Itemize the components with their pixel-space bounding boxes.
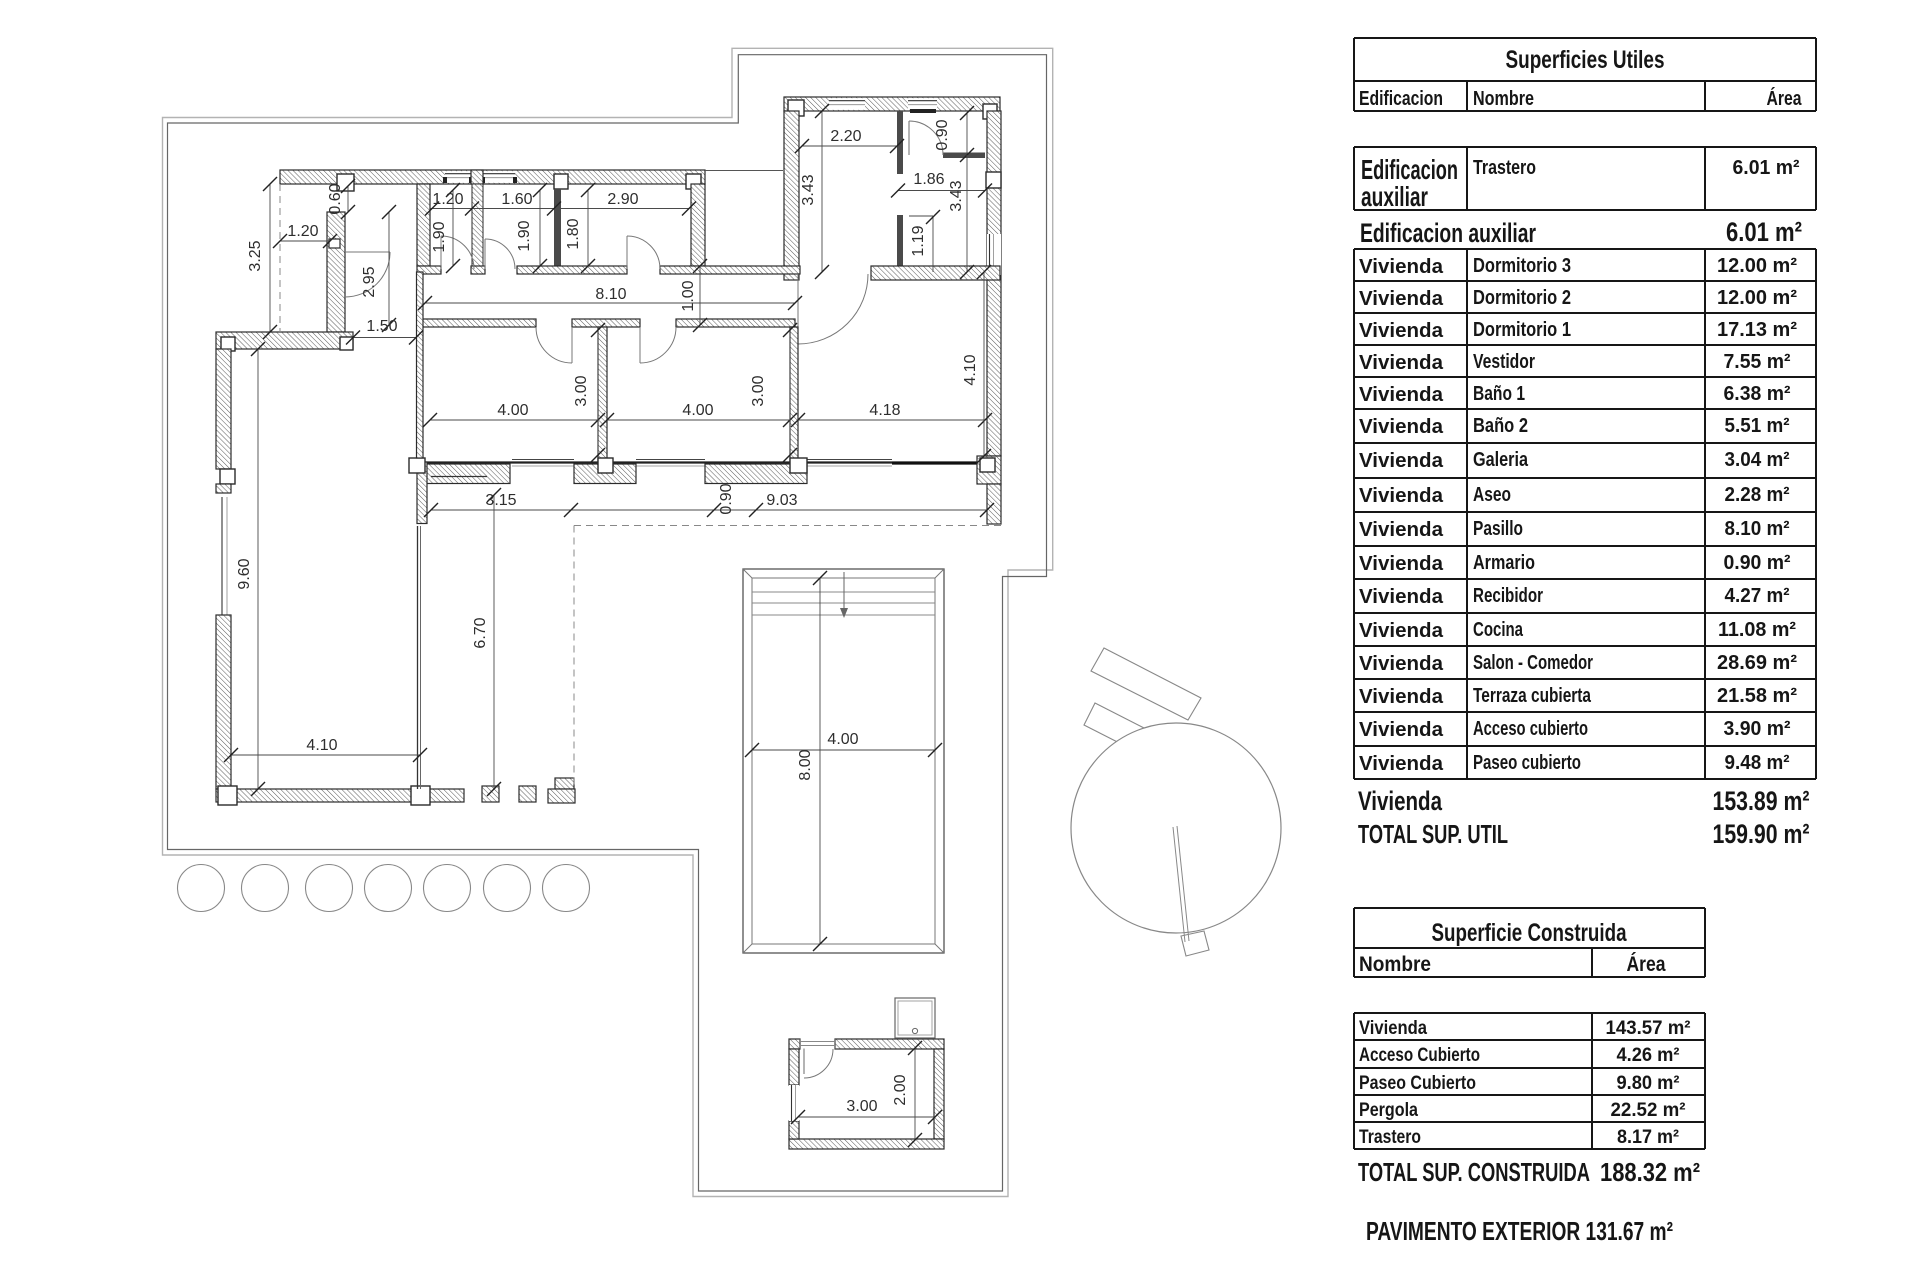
svg-text:Aseo: Aseo <box>1473 484 1511 506</box>
svg-text:9.60: 9.60 <box>236 558 253 589</box>
svg-text:Vivienda: Vivienda <box>1359 485 1444 507</box>
svg-text:Acceso Cubierto: Acceso Cubierto <box>1359 1045 1480 1066</box>
svg-text:5.51 m²: 5.51 m² <box>1725 415 1790 437</box>
svg-text:Vivienda: Vivienda <box>1359 256 1444 278</box>
svg-text:Cocina: Cocina <box>1473 619 1524 641</box>
svg-text:Vestidor: Vestidor <box>1473 351 1535 373</box>
svg-text:Vivienda: Vivienda <box>1359 753 1444 775</box>
svg-text:Vivienda: Vivienda <box>1359 620 1444 642</box>
svg-text:188.32 m²: 188.32 m² <box>1600 1157 1700 1187</box>
svg-text:0.90 m²: 0.90 m² <box>1724 552 1791 574</box>
svg-text:Dormitorio 1: Dormitorio 1 <box>1473 319 1571 341</box>
svg-text:Superficie Construida: Superficie Construida <box>1432 919 1628 947</box>
svg-text:Trastero: Trastero <box>1473 157 1536 179</box>
svg-text:Área: Área <box>1767 87 1803 110</box>
svg-text:17.13 m²: 17.13 m² <box>1717 319 1797 341</box>
svg-text:1.80: 1.80 <box>565 218 582 249</box>
svg-text:Vivienda: Vivienda <box>1359 519 1444 541</box>
svg-text:9.48 m²: 9.48 m² <box>1725 752 1790 774</box>
svg-text:2.00: 2.00 <box>892 1074 909 1105</box>
svg-text:4.00: 4.00 <box>682 402 713 419</box>
svg-text:Trastero: Trastero <box>1359 1127 1421 1148</box>
svg-text:153.89 m²: 153.89 m² <box>1713 786 1810 816</box>
svg-text:6.38 m²: 6.38 m² <box>1724 383 1791 405</box>
svg-text:8.17 m²: 8.17 m² <box>1617 1127 1679 1148</box>
svg-text:Pasillo: Pasillo <box>1473 518 1523 540</box>
svg-text:159.90 m²: 159.90 m² <box>1713 819 1810 849</box>
svg-text:8.00: 8.00 <box>797 749 814 780</box>
svg-text:7.55 m²: 7.55 m² <box>1724 351 1791 373</box>
svg-text:Paseo cubierto: Paseo cubierto <box>1473 752 1581 774</box>
svg-text:Vivienda: Vivienda <box>1359 416 1444 438</box>
svg-text:9.03: 9.03 <box>766 492 797 509</box>
svg-text:6.01 m²: 6.01 m² <box>1733 157 1800 179</box>
svg-text:8.10: 8.10 <box>595 286 626 303</box>
svg-text:Vivienda: Vivienda <box>1359 1018 1427 1039</box>
svg-text:12.00 m²: 12.00 m² <box>1717 255 1797 277</box>
svg-text:Baño 1: Baño 1 <box>1473 383 1525 405</box>
svg-text:Paseo Cubierto: Paseo Cubierto <box>1359 1073 1476 1094</box>
svg-text:Edificacion: Edificacion <box>1359 88 1443 110</box>
svg-text:Armario: Armario <box>1473 552 1535 574</box>
svg-text:3.90 m²: 3.90 m² <box>1724 718 1791 740</box>
svg-text:4.10: 4.10 <box>306 737 337 754</box>
svg-text:2.95: 2.95 <box>361 266 378 297</box>
svg-text:Acceso cubierto: Acceso cubierto <box>1473 718 1588 740</box>
svg-text:Baño 2: Baño 2 <box>1473 415 1528 437</box>
svg-text:1.90: 1.90 <box>516 220 533 251</box>
svg-text:1.86: 1.86 <box>913 171 944 188</box>
svg-text:4.00: 4.00 <box>827 731 858 748</box>
svg-text:1.50: 1.50 <box>366 318 397 335</box>
svg-text:3.15: 3.15 <box>485 492 516 509</box>
svg-text:8.10 m²: 8.10 m² <box>1725 518 1790 540</box>
svg-text:Galeria: Galeria <box>1473 449 1529 471</box>
svg-text:PAVIMENTO EXTERIOR 131.67 m²: PAVIMENTO EXTERIOR 131.67 m² <box>1366 1216 1673 1246</box>
svg-text:4.10: 4.10 <box>962 354 979 385</box>
svg-text:28.69 m²: 28.69 m² <box>1717 652 1797 674</box>
svg-text:6.70: 6.70 <box>472 617 489 648</box>
svg-text:22.52 m²: 22.52 m² <box>1611 1100 1686 1121</box>
svg-text:3.00: 3.00 <box>750 375 767 406</box>
svg-text:3.04 m²: 3.04 m² <box>1725 449 1790 471</box>
svg-text:Vivienda: Vivienda <box>1359 288 1444 310</box>
svg-text:1.20: 1.20 <box>432 191 463 208</box>
svg-text:1.90: 1.90 <box>431 221 448 252</box>
svg-text:Vivienda: Vivienda <box>1359 352 1444 374</box>
svg-text:1.20: 1.20 <box>287 223 318 240</box>
svg-text:Vivienda: Vivienda <box>1359 686 1444 708</box>
svg-text:4.26 m²: 4.26 m² <box>1617 1045 1680 1066</box>
svg-text:Área: Área <box>1627 953 1666 976</box>
svg-text:Nombre: Nombre <box>1359 953 1431 976</box>
svg-text:Vivienda: Vivienda <box>1359 553 1444 575</box>
svg-text:4.18: 4.18 <box>869 402 900 419</box>
svg-text:4.27 m²: 4.27 m² <box>1725 585 1790 607</box>
svg-text:Dormitorio 3: Dormitorio 3 <box>1473 255 1571 277</box>
svg-text:Vivienda: Vivienda <box>1359 450 1444 472</box>
svg-text:12.00 m²: 12.00 m² <box>1717 287 1797 309</box>
svg-text:Terraza cubierta: Terraza cubierta <box>1473 685 1592 707</box>
svg-text:21.58 m²: 21.58 m² <box>1717 685 1797 707</box>
svg-text:4.00: 4.00 <box>497 402 528 419</box>
svg-text:Nombre: Nombre <box>1473 88 1534 110</box>
svg-text:Vivienda: Vivienda <box>1359 653 1444 675</box>
svg-text:Recibidor: Recibidor <box>1473 585 1543 607</box>
svg-text:1.19: 1.19 <box>910 225 927 256</box>
svg-text:Pergola: Pergola <box>1359 1100 1418 1121</box>
svg-text:TOTAL SUP. CONSTRUIDA: TOTAL SUP. CONSTRUIDA <box>1358 1157 1590 1187</box>
svg-text:0.60: 0.60 <box>327 183 344 214</box>
svg-text:Vivienda: Vivienda <box>1358 786 1443 816</box>
svg-text:9.80 m²: 9.80 m² <box>1617 1073 1680 1094</box>
svg-text:Vivienda: Vivienda <box>1359 384 1444 406</box>
svg-text:3.43: 3.43 <box>948 180 965 211</box>
svg-text:Vivienda: Vivienda <box>1359 586 1444 608</box>
svg-text:1.00: 1.00 <box>680 280 697 311</box>
svg-text:TOTAL SUP. UTIL: TOTAL SUP. UTIL <box>1358 819 1508 849</box>
svg-text:Vivienda: Vivienda <box>1359 719 1444 741</box>
svg-text:6.01 m²: 6.01 m² <box>1726 217 1802 247</box>
svg-text:1.60: 1.60 <box>501 191 532 208</box>
svg-text:Vivienda: Vivienda <box>1359 320 1444 342</box>
svg-text:3.00: 3.00 <box>573 375 590 406</box>
svg-text:11.08 m²: 11.08 m² <box>1718 619 1796 641</box>
svg-text:Salon - Comedor: Salon - Comedor <box>1473 652 1593 674</box>
svg-text:Edificacion auxiliar: Edificacion auxiliar <box>1360 218 1536 248</box>
svg-text:0.90: 0.90 <box>718 483 735 514</box>
svg-text:2.20: 2.20 <box>830 128 861 145</box>
svg-text:2.28 m²: 2.28 m² <box>1725 484 1790 506</box>
svg-text:0.90: 0.90 <box>934 119 951 150</box>
svg-text:143.57 m²: 143.57 m² <box>1606 1018 1691 1039</box>
svg-text:Superficies Utiles: Superficies Utiles <box>1506 46 1665 74</box>
svg-text:2.90: 2.90 <box>607 191 638 208</box>
svg-text:3.43: 3.43 <box>800 174 817 205</box>
svg-text:3.00: 3.00 <box>846 1098 877 1115</box>
svg-text:3.25: 3.25 <box>247 240 264 271</box>
svg-text:auxiliar: auxiliar <box>1361 181 1428 212</box>
svg-text:Dormitorio 2: Dormitorio 2 <box>1473 287 1571 309</box>
